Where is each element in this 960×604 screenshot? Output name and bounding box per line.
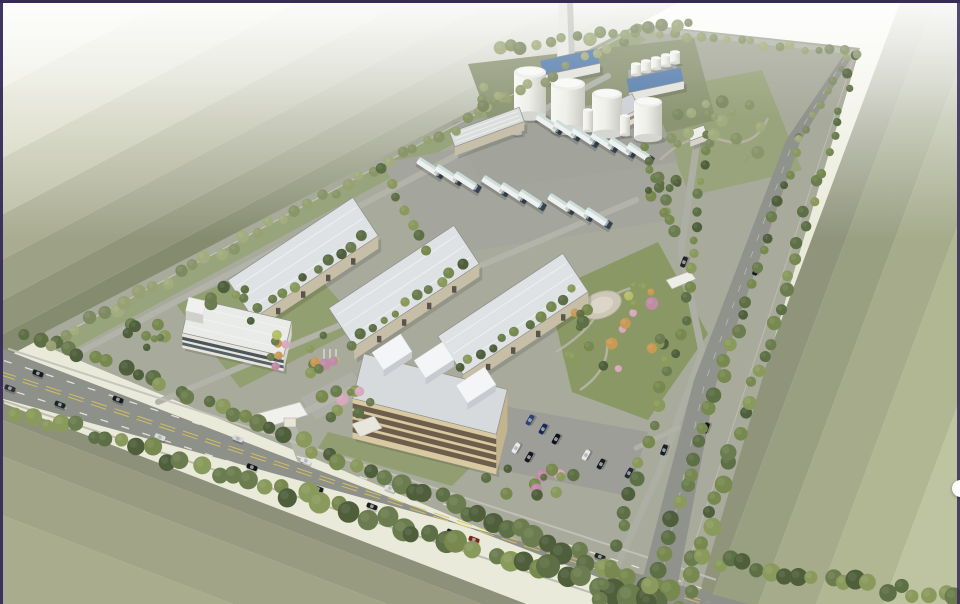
atmospheric-haze <box>0 0 960 120</box>
aerial-rendering <box>0 0 960 604</box>
rendering-viewport <box>0 0 960 604</box>
